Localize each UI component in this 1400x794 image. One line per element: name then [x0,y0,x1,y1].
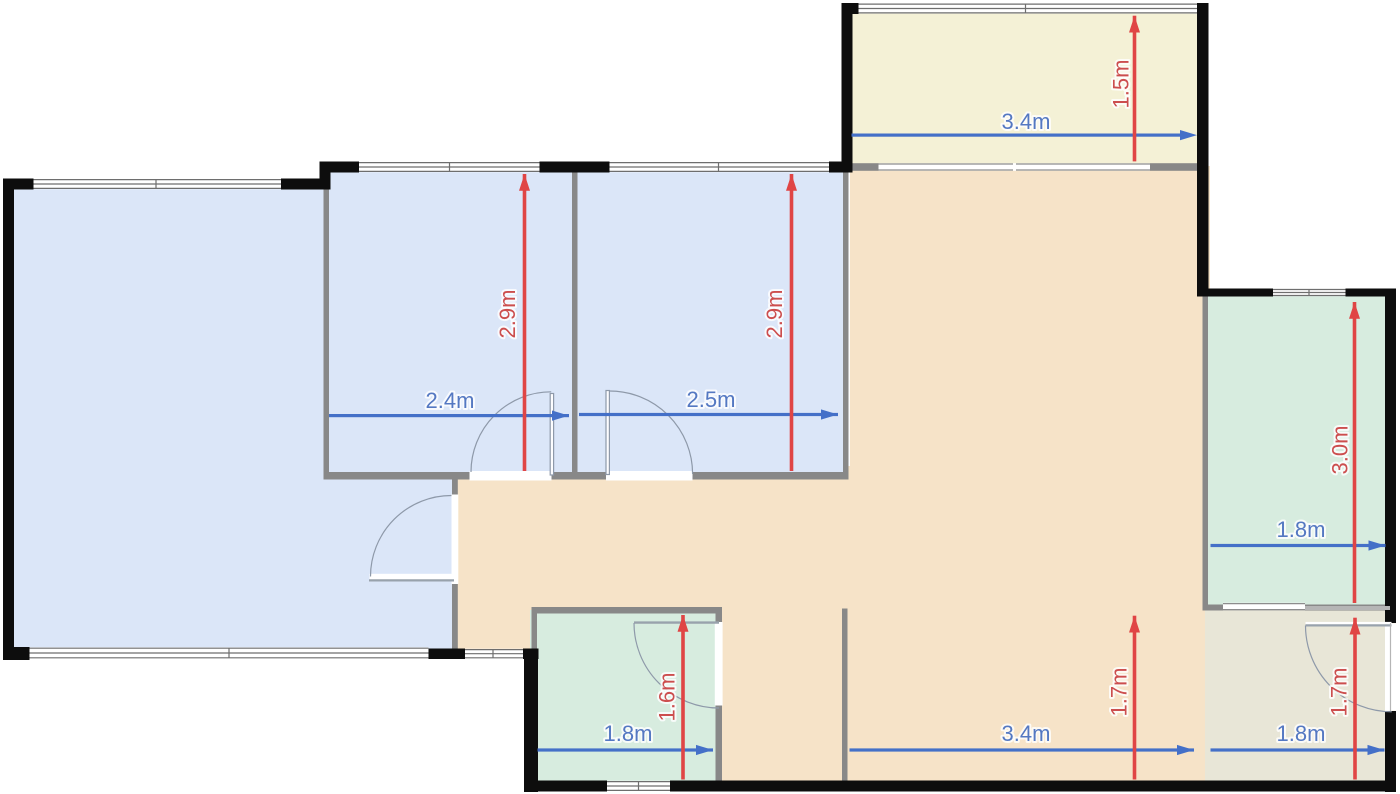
svg-text:3.0m: 3.0m [1328,426,1353,475]
svg-text:1.7m: 1.7m [1327,668,1352,717]
svg-text:3.4m: 3.4m [1002,109,1051,134]
svg-text:1.8m: 1.8m [1277,517,1326,542]
svg-text:1.8m: 1.8m [1277,721,1326,746]
svg-text:1.6m: 1.6m [655,673,680,722]
svg-text:2.4m: 2.4m [426,388,475,413]
svg-text:1.8m: 1.8m [604,721,653,746]
svg-text:3.4m: 3.4m [1002,721,1051,746]
svg-text:2.5m: 2.5m [687,387,736,412]
svg-text:1.7m: 1.7m [1107,668,1132,717]
svg-text:1.5m: 1.5m [1109,60,1134,109]
svg-text:2.9m: 2.9m [495,290,520,339]
svg-text:2.9m: 2.9m [762,290,787,339]
